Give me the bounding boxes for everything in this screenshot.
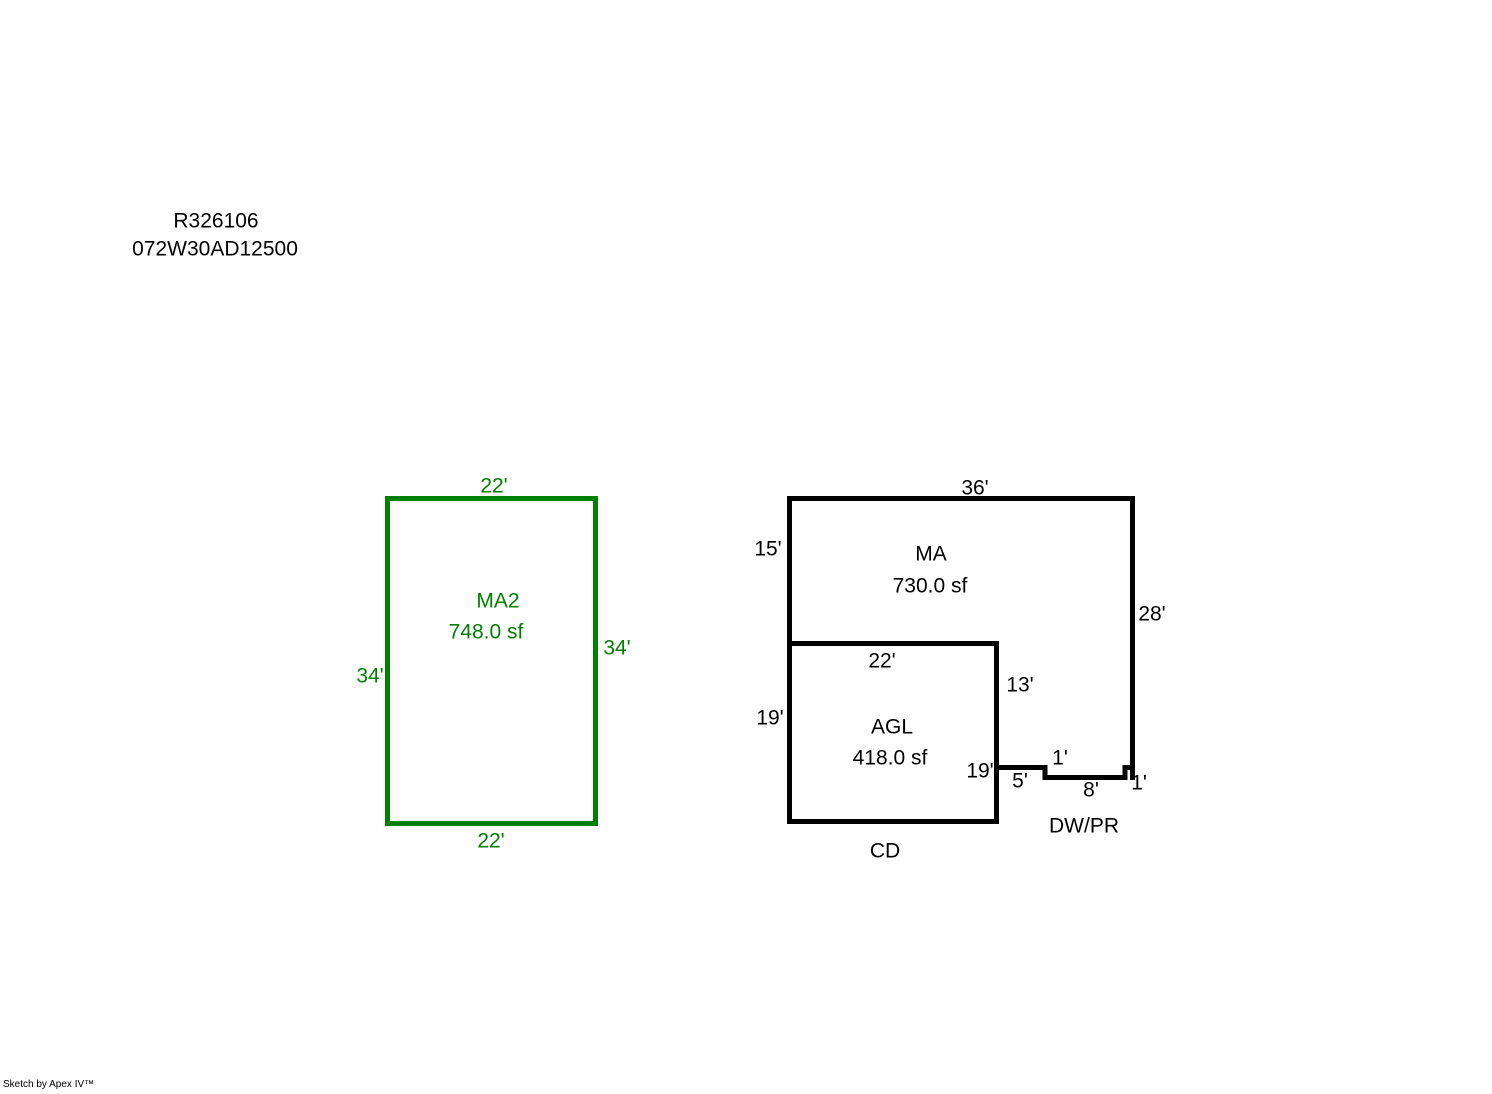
sketch-drawing xyxy=(0,0,1492,1094)
ma-dim-right: 28' xyxy=(1138,604,1165,625)
ma-section-label: MA xyxy=(915,544,947,565)
parcel-id-line2: 072W30AD12500 xyxy=(132,239,298,260)
ma-section-area: 730.0 sf xyxy=(893,576,968,597)
agl-dim-right-upper: 13' xyxy=(1006,675,1033,696)
ma-outline xyxy=(790,499,1133,822)
dwpr-dim-left: 5' xyxy=(1012,771,1028,792)
sketch-credit: Sketch by Apex IV™ xyxy=(3,1079,94,1090)
agl-section-label: AGL xyxy=(871,717,913,738)
cd-section-label: CD xyxy=(870,841,900,862)
ma2-outline xyxy=(388,499,596,824)
ma2-section-area: 748.0 sf xyxy=(449,622,524,643)
ma2-dim-bottom: 22' xyxy=(477,831,504,852)
ma2-dim-right: 34' xyxy=(603,638,630,659)
dwpr-section-label: DW/PR xyxy=(1049,816,1119,837)
agl-dim-left: 19' xyxy=(756,708,783,729)
ma-dim-left: 15' xyxy=(754,539,781,560)
agl-dim-top: 22' xyxy=(868,651,895,672)
sketch-page: R326106 072W30AD12500 22' 34' 34' 22' MA… xyxy=(0,0,1492,1094)
ma2-dim-top: 22' xyxy=(480,476,507,497)
dwpr-dim-step-up: 1' xyxy=(1131,773,1147,794)
ma2-section-label: MA2 xyxy=(476,591,519,612)
ma-dim-top: 36' xyxy=(961,478,988,499)
dwpr-dim-step-down: 1' xyxy=(1052,748,1068,769)
agl-section-area: 418.0 sf xyxy=(853,748,928,769)
parcel-id-line1: R326106 xyxy=(173,211,258,232)
dwpr-dim-bottom: 8' xyxy=(1083,780,1099,801)
agl-dim-right-lower: 19' xyxy=(966,761,993,782)
ma2-dim-left: 34' xyxy=(356,666,383,687)
